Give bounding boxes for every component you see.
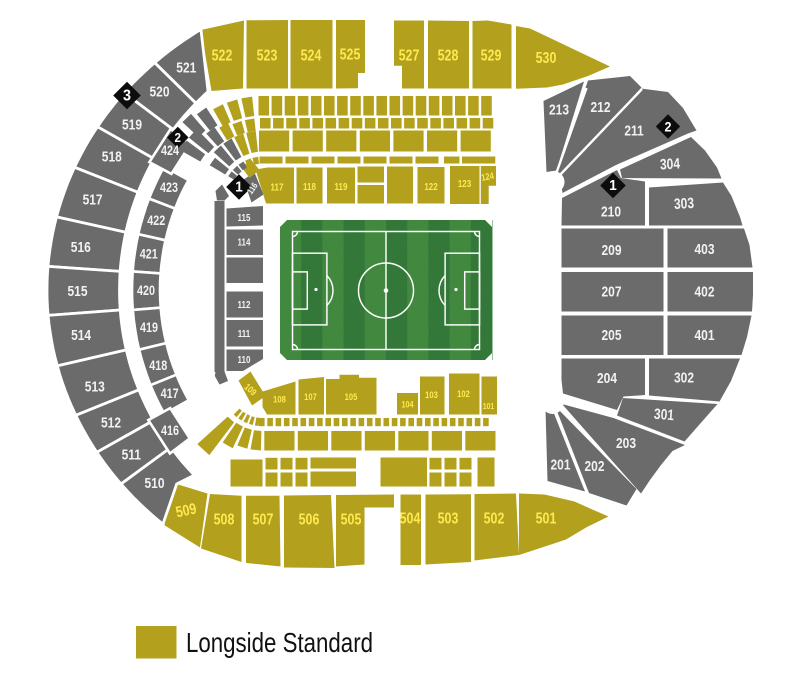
- svg-text:519: 519: [122, 116, 142, 133]
- svg-text:530: 530: [536, 49, 557, 67]
- svg-text:Longside Standard: Longside Standard: [186, 627, 373, 658]
- svg-text:401: 401: [694, 327, 714, 344]
- svg-text:114: 114: [238, 236, 251, 247]
- svg-text:115: 115: [238, 212, 251, 223]
- svg-text:205: 205: [601, 327, 621, 344]
- svg-text:107: 107: [304, 391, 317, 402]
- svg-text:201: 201: [550, 456, 570, 473]
- svg-text:527: 527: [399, 46, 420, 64]
- svg-text:204: 204: [597, 370, 617, 387]
- svg-text:529: 529: [481, 46, 502, 64]
- svg-text:104: 104: [402, 400, 414, 410]
- svg-text:516: 516: [71, 239, 91, 256]
- svg-text:424: 424: [161, 143, 179, 158]
- svg-text:202: 202: [584, 458, 604, 475]
- svg-text:521: 521: [176, 59, 196, 76]
- svg-text:301: 301: [653, 406, 675, 424]
- svg-text:513: 513: [85, 378, 105, 395]
- svg-text:3: 3: [123, 87, 131, 105]
- svg-text:111: 111: [238, 328, 250, 339]
- svg-text:209: 209: [601, 242, 621, 259]
- svg-text:105: 105: [345, 391, 358, 402]
- svg-text:203: 203: [616, 435, 636, 452]
- svg-text:508: 508: [214, 510, 235, 528]
- svg-text:210: 210: [601, 203, 621, 220]
- svg-text:304: 304: [660, 155, 681, 173]
- svg-text:510: 510: [144, 475, 164, 492]
- svg-text:303: 303: [674, 195, 695, 213]
- svg-text:523: 523: [257, 46, 278, 64]
- svg-text:1: 1: [235, 179, 243, 196]
- svg-text:515: 515: [67, 283, 87, 300]
- svg-text:108: 108: [273, 393, 286, 404]
- svg-text:525: 525: [340, 45, 361, 63]
- svg-text:416: 416: [161, 423, 179, 438]
- svg-text:403: 403: [694, 241, 714, 258]
- svg-text:124: 124: [480, 170, 495, 183]
- svg-text:122: 122: [424, 181, 437, 192]
- svg-text:2: 2: [664, 119, 671, 135]
- svg-text:1: 1: [609, 178, 617, 195]
- svg-text:518: 518: [102, 148, 122, 165]
- svg-text:102: 102: [457, 388, 470, 399]
- svg-text:418: 418: [149, 358, 167, 373]
- svg-text:522: 522: [212, 46, 233, 64]
- svg-text:524: 524: [301, 46, 322, 64]
- svg-text:423: 423: [160, 180, 178, 195]
- svg-text:419: 419: [140, 320, 158, 335]
- svg-text:417: 417: [161, 386, 179, 401]
- svg-text:118: 118: [303, 181, 316, 192]
- svg-text:502: 502: [484, 509, 505, 527]
- svg-text:101: 101: [483, 401, 495, 411]
- svg-text:420: 420: [137, 283, 155, 298]
- svg-text:421: 421: [140, 246, 158, 261]
- svg-text:302: 302: [674, 369, 694, 386]
- svg-text:117: 117: [271, 181, 284, 192]
- svg-text:505: 505: [341, 510, 362, 528]
- svg-text:503: 503: [438, 509, 459, 527]
- svg-text:501: 501: [536, 509, 557, 527]
- svg-text:103: 103: [425, 389, 438, 400]
- svg-text:119: 119: [335, 181, 348, 192]
- svg-text:506: 506: [299, 510, 320, 528]
- svg-text:402: 402: [694, 283, 714, 300]
- svg-text:207: 207: [601, 283, 621, 300]
- svg-text:514: 514: [71, 327, 91, 344]
- svg-text:520: 520: [149, 83, 169, 100]
- svg-text:110: 110: [238, 354, 251, 365]
- svg-text:212: 212: [590, 99, 610, 116]
- svg-text:512: 512: [101, 414, 121, 431]
- svg-text:422: 422: [147, 213, 165, 228]
- svg-text:211: 211: [624, 122, 644, 139]
- svg-text:112: 112: [238, 299, 251, 310]
- svg-text:123: 123: [458, 178, 471, 189]
- svg-text:511: 511: [122, 446, 142, 463]
- svg-text:517: 517: [83, 191, 103, 208]
- svg-text:507: 507: [253, 510, 274, 528]
- svg-text:504: 504: [400, 509, 421, 527]
- svg-text:213: 213: [549, 101, 569, 118]
- svg-text:528: 528: [438, 46, 459, 64]
